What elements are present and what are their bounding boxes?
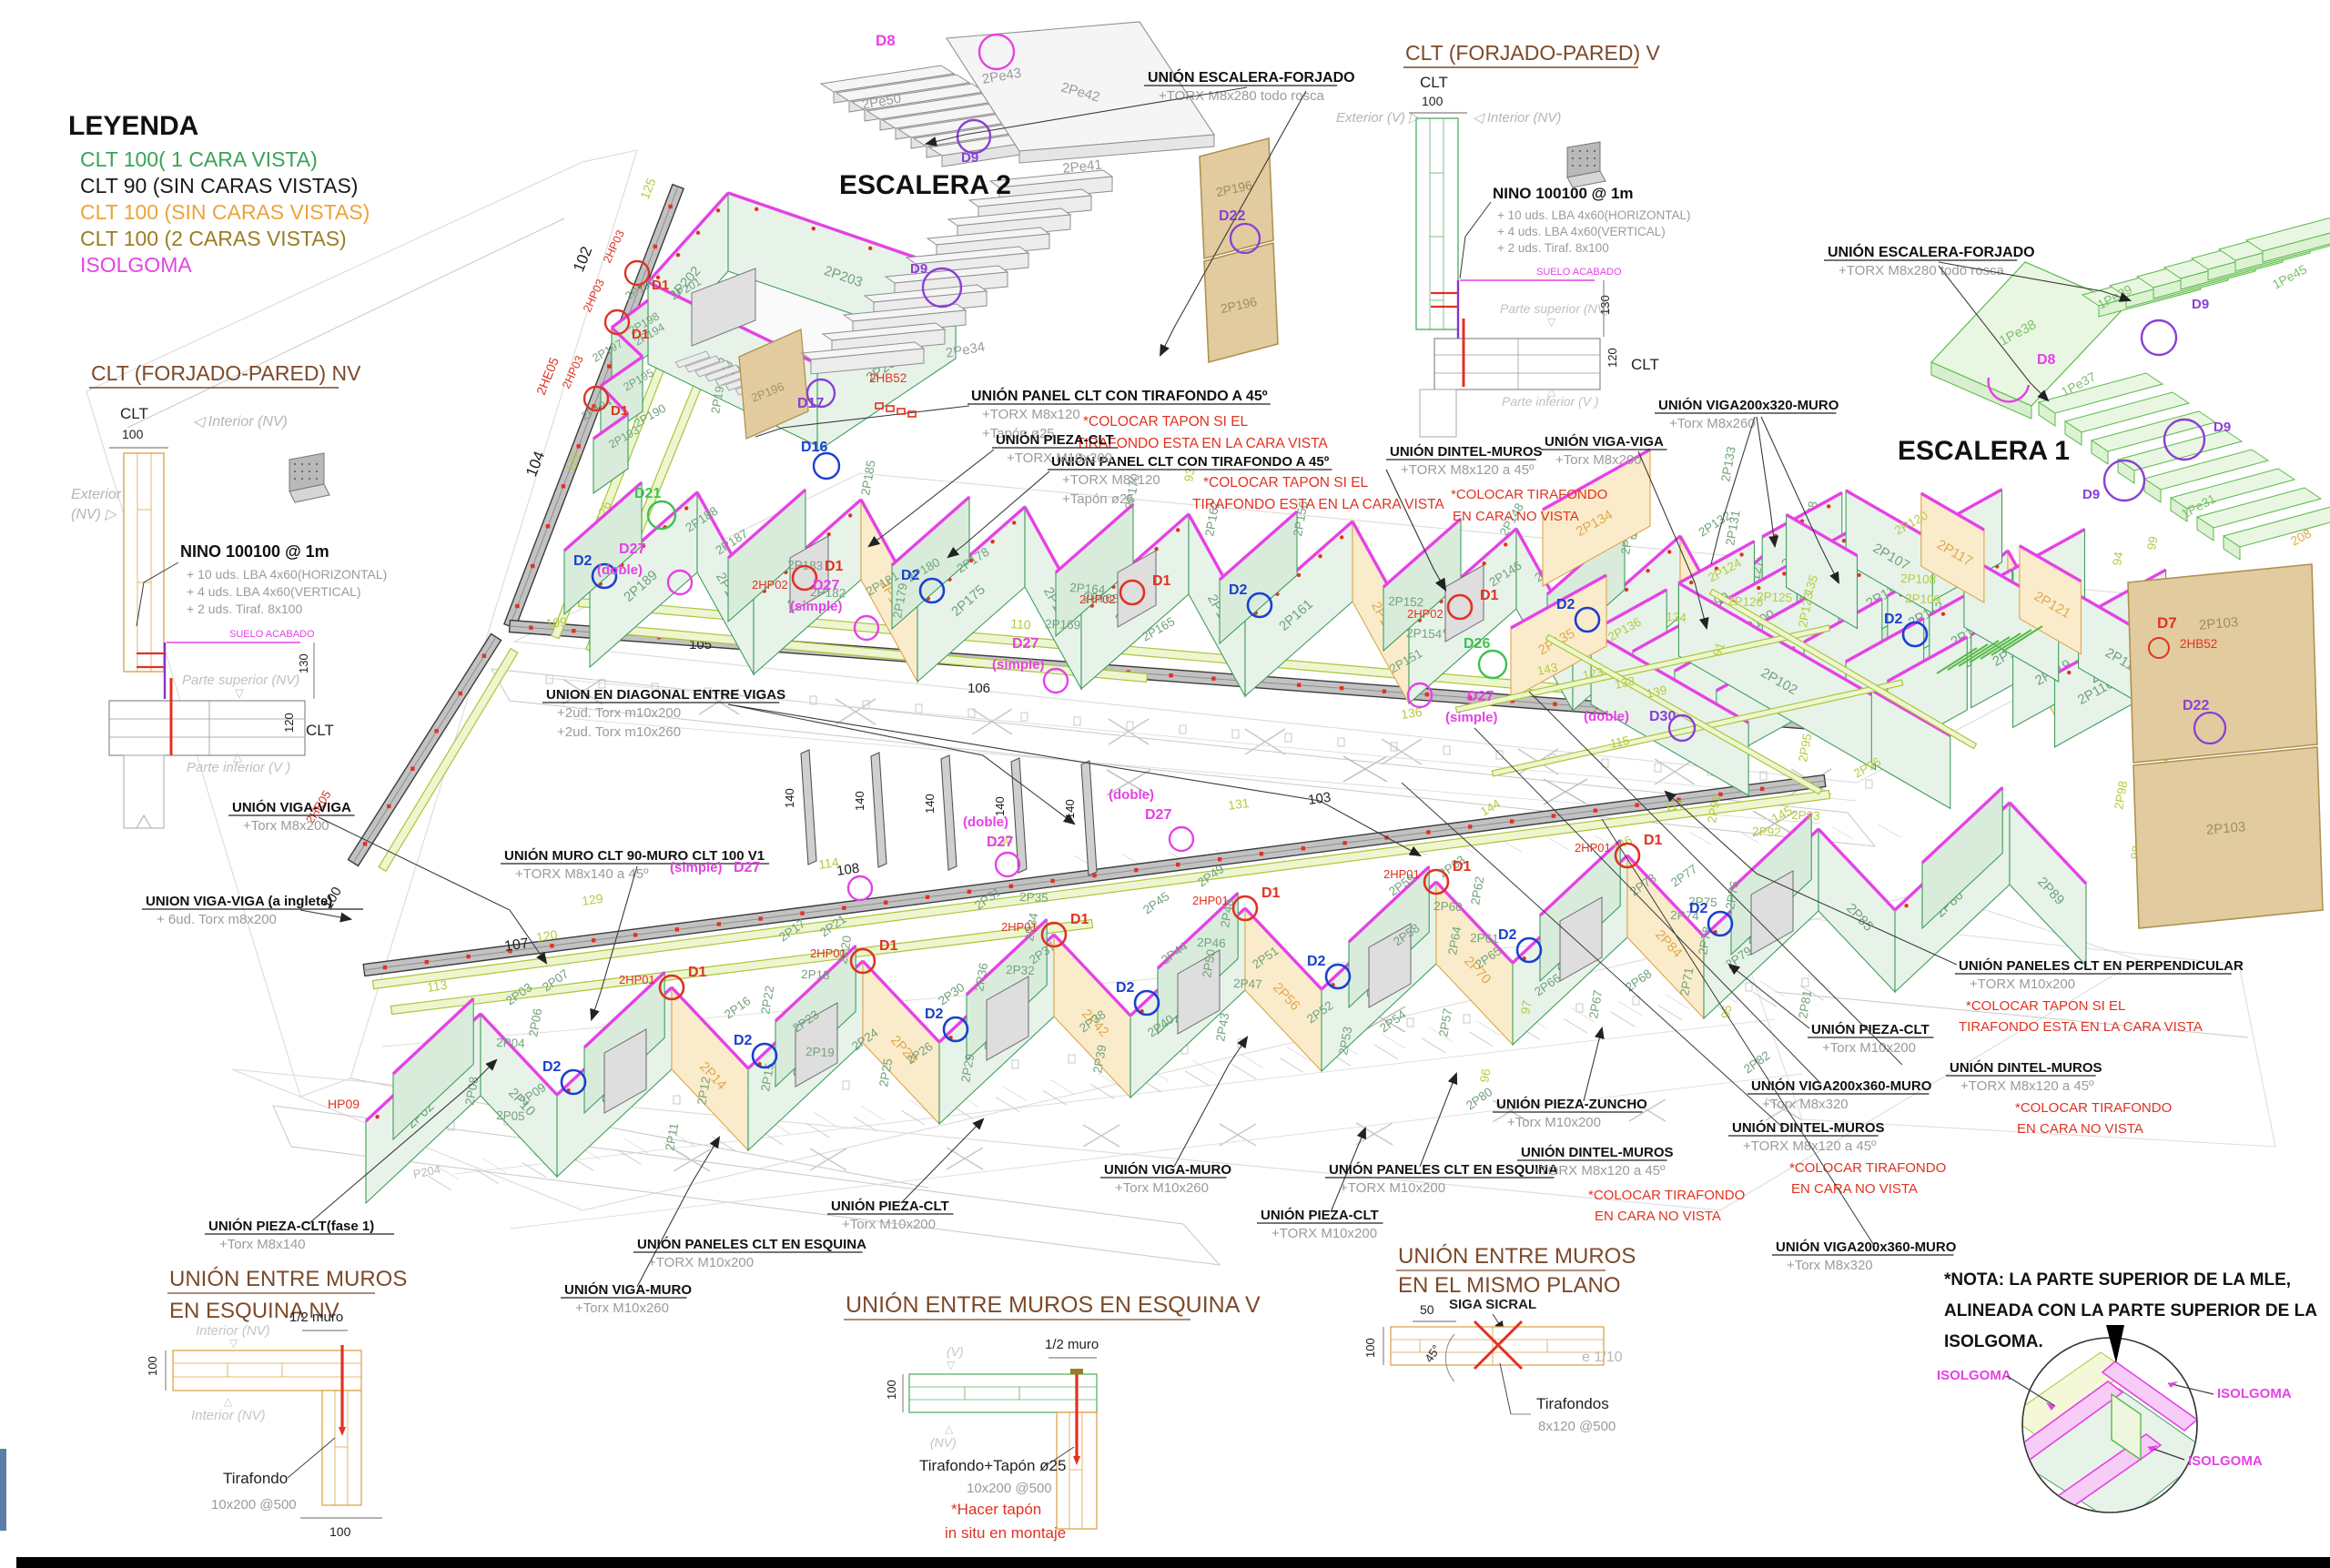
svg-text:140: 140	[783, 788, 796, 808]
svg-text:+2ud. Torx m10x260: +2ud. Torx m10x260	[557, 724, 681, 740]
svg-text:109: 109	[545, 614, 568, 631]
svg-text:D2: D2	[1689, 901, 1708, 916]
svg-text:D2: D2	[1307, 954, 1326, 969]
svg-text:(doble): (doble)	[963, 814, 1008, 830]
svg-text:100: 100	[146, 1356, 159, 1376]
svg-text:D8: D8	[2037, 352, 2056, 368]
svg-text:*COLOCAR TAPON SI EL: *COLOCAR TAPON SI EL	[1966, 998, 2125, 1014]
svg-text:UNIÓN DINTEL-MUROS: UNIÓN DINTEL-MUROS	[1521, 1144, 1674, 1160]
svg-text:2P108: 2P108	[1900, 572, 1937, 586]
svg-text:+TORX M8x120 a 45º: +TORX M8x120 a 45º	[1401, 462, 1535, 478]
svg-text:UNIÓN ENTRE MUROS EN ESQUINA V: UNIÓN ENTRE MUROS EN ESQUINA V	[846, 1291, 1261, 1318]
svg-text:+TORX M8x120: +TORX M8x120	[1062, 472, 1160, 488]
svg-text:*COLOCAR TIRAFONDO: *COLOCAR TIRAFONDO	[1789, 1160, 1946, 1176]
svg-text:UNIÓN DINTEL-MUROS: UNIÓN DINTEL-MUROS	[1390, 443, 1543, 460]
svg-text:(doble): (doble)	[597, 562, 643, 578]
svg-text:D1: D1	[1453, 859, 1472, 875]
svg-text:CLT 100( 1 CARA VISTA): CLT 100( 1 CARA VISTA)	[80, 147, 318, 171]
svg-text:D2: D2	[1116, 980, 1135, 996]
svg-text:UNIÓN ESCALERA-FORJADO: UNIÓN ESCALERA-FORJADO	[1828, 243, 2035, 260]
svg-text:D9: D9	[2213, 420, 2231, 435]
svg-text:+ 6ud. Torx m8x200: + 6ud. Torx m8x200	[157, 912, 277, 927]
svg-text:in situ en montaje: in situ en montaje	[945, 1524, 1066, 1542]
svg-text:+Torx M8x200: +Torx M8x200	[1555, 452, 1642, 468]
svg-text:2P92: 2P92	[1752, 824, 1781, 839]
svg-text:*Hacer tapón: *Hacer tapón	[951, 1501, 1041, 1518]
svg-text:2HB52: 2HB52	[869, 371, 907, 385]
svg-text:D9: D9	[2192, 297, 2209, 312]
svg-text:▽: ▽	[1547, 316, 1556, 329]
svg-text:+TORX M8x120 a 45º: +TORX M8x120 a 45º	[1532, 1163, 1666, 1179]
svg-text:EN CARA NO VISTA: EN CARA NO VISTA	[1453, 509, 1579, 524]
svg-text:CLT: CLT	[306, 722, 334, 739]
svg-text:*COLOCAR TAPON SI EL: *COLOCAR TAPON SI EL	[1083, 414, 1249, 430]
svg-text:D27: D27	[1467, 689, 1494, 704]
svg-text:1/2 muro: 1/2 muro	[289, 1310, 343, 1325]
svg-text:D2: D2	[573, 553, 593, 569]
svg-text:▽: ▽	[947, 1359, 956, 1371]
svg-text:2HP01: 2HP01	[1383, 867, 1420, 881]
svg-text:2HP02: 2HP02	[752, 578, 788, 592]
svg-text:(simple): (simple)	[790, 599, 843, 614]
svg-text:131: 131	[1227, 795, 1251, 813]
svg-text:50: 50	[1420, 1302, 1434, 1317]
svg-text:ISOLGOMA: ISOLGOMA	[2217, 1386, 2292, 1401]
svg-text:10x200 @500: 10x200 @500	[211, 1497, 297, 1512]
svg-text:e 1/10: e 1/10	[1582, 1350, 1623, 1365]
svg-text:EN CARA NO VISTA: EN CARA NO VISTA	[1595, 1209, 1721, 1224]
svg-text:▽: ▽	[229, 1337, 238, 1350]
svg-text:+ 4 uds. LBA 4x60(VERTICAL): + 4 uds. LBA 4x60(VERTICAL)	[1497, 225, 1666, 238]
svg-text:UNIÓN PANELES CLT EN ESQUINA: UNIÓN PANELES CLT EN ESQUINA	[1329, 1161, 1558, 1178]
svg-text:UNIÓN DINTEL-MUROS: UNIÓN DINTEL-MUROS	[1732, 1119, 1885, 1136]
svg-text:HP09: HP09	[328, 1097, 360, 1111]
svg-text:CLT: CLT	[1631, 356, 1659, 373]
svg-text:+TORX M10x200: +TORX M10x200	[1007, 450, 1112, 466]
svg-text:UNIÓN VIGA200x360-MURO: UNIÓN VIGA200x360-MURO	[1776, 1239, 1957, 1255]
svg-text:ISOLGOMA: ISOLGOMA	[1937, 1368, 2011, 1383]
svg-text:△: △	[233, 750, 242, 764]
svg-text:+TORX M8x280 todo rosca: +TORX M8x280 todo rosca	[1839, 263, 2005, 278]
svg-text:2P05: 2P05	[496, 1108, 525, 1123]
svg-text:96: 96	[1477, 1067, 1493, 1083]
svg-text:ESCALERA 2: ESCALERA 2	[839, 170, 1011, 200]
svg-text:+Torx M8x200: +Torx M8x200	[243, 818, 329, 834]
svg-text:2P19: 2P19	[805, 1045, 835, 1059]
svg-text:D21: D21	[634, 486, 661, 501]
svg-text:D2: D2	[1884, 612, 1903, 627]
svg-text:UNIÓN MURO CLT 90-MURO CLT 100: UNIÓN MURO CLT 90-MURO CLT 100 V1	[504, 847, 765, 864]
svg-text:UNIÓN DINTEL-MUROS: UNIÓN DINTEL-MUROS	[1950, 1059, 2102, 1076]
svg-text:D27: D27	[619, 541, 645, 557]
svg-text:*COLOCAR TAPON SI EL: *COLOCAR TAPON SI EL	[1203, 475, 1369, 491]
svg-text:D27: D27	[813, 578, 839, 593]
svg-text:◁ Interior (NV): ◁ Interior (NV)	[193, 414, 288, 430]
svg-text:UNIÓN PIEZA-CLT: UNIÓN PIEZA-CLT	[996, 431, 1114, 448]
svg-text:UNION VIGA-VIGA (a inglete): UNION VIGA-VIGA (a inglete)	[146, 894, 332, 909]
svg-text:ALINEADA CON LA PARTE SUPERIOR: ALINEADA CON LA PARTE SUPERIOR DE LA	[1944, 1301, 2317, 1320]
svg-text:Tirafondo+Tapón ø25: Tirafondo+Tapón ø25	[919, 1457, 1066, 1474]
svg-text:8x120 @500: 8x120 @500	[1538, 1419, 1616, 1434]
svg-text:+TORX M10x200: +TORX M10x200	[1271, 1226, 1377, 1241]
svg-text:(NV) ▷: (NV) ▷	[71, 507, 117, 522]
svg-text:2HP01: 2HP01	[810, 946, 846, 960]
svg-text:ISOLGOMA.: ISOLGOMA.	[1944, 1332, 2043, 1351]
svg-text:+ 2 uds. Tiraf. 8x100: + 2 uds. Tiraf. 8x100	[1497, 241, 1609, 255]
svg-text:+TORX M8x140 a 45º: +TORX M8x140 a 45º	[515, 866, 649, 882]
svg-text:D2: D2	[734, 1033, 753, 1048]
svg-text:D2: D2	[542, 1059, 562, 1075]
svg-text:140: 140	[853, 791, 866, 811]
svg-text:D1: D1	[611, 403, 628, 419]
svg-text:129: 129	[581, 891, 604, 908]
svg-text:*COLOCAR TIRAFONDO: *COLOCAR TIRAFONDO	[1451, 487, 1607, 502]
svg-text:△: △	[1547, 385, 1556, 398]
svg-text:D9: D9	[910, 261, 927, 277]
svg-text:D7: D7	[2157, 614, 2177, 632]
svg-text:140: 140	[923, 794, 937, 814]
svg-text:Parte superior (NV): Parte superior (NV)	[1500, 301, 1610, 316]
svg-text:UNIÓN VIGA-MURO: UNIÓN VIGA-MURO	[564, 1281, 692, 1298]
svg-text:D1: D1	[825, 559, 844, 574]
svg-text:CLT 100 (SIN CARAS VISTAS): CLT 100 (SIN CARAS VISTAS)	[80, 200, 370, 224]
svg-text:D27: D27	[1012, 636, 1038, 652]
svg-text:UNIÓN ENTRE MUROS: UNIÓN ENTRE MUROS	[1398, 1244, 1636, 1269]
svg-text:100: 100	[885, 1380, 898, 1400]
svg-text:Tirafondo: Tirafondo	[223, 1470, 288, 1487]
svg-text:2P35: 2P35	[1019, 890, 1048, 905]
svg-text:CLT: CLT	[1420, 74, 1448, 91]
svg-text:UNIÓN PANELES CLT EN PERPENDIC: UNIÓN PANELES CLT EN PERPENDICULAR	[1959, 957, 2244, 974]
svg-text:UNIÓN VIGA-VIGA: UNIÓN VIGA-VIGA	[232, 799, 351, 815]
svg-text:2HP02: 2HP02	[1407, 607, 1444, 621]
svg-text:2P93: 2P93	[1791, 808, 1820, 823]
svg-text:+TORX M8x120: +TORX M8x120	[982, 407, 1080, 422]
svg-text:D2: D2	[925, 1007, 944, 1022]
svg-text:2HB52: 2HB52	[2180, 637, 2217, 651]
svg-text:100: 100	[329, 1524, 351, 1539]
svg-text:UNIÓN PIEZA-CLT: UNIÓN PIEZA-CLT	[1261, 1207, 1379, 1223]
svg-text:D27: D27	[734, 860, 760, 875]
svg-text:▽: ▽	[235, 686, 244, 700]
svg-text:+TORX M8x120 a 45º: +TORX M8x120 a 45º	[1960, 1078, 2094, 1094]
svg-text:D22: D22	[2183, 698, 2209, 713]
svg-text:UNIÓN VIGA200x320-MURO: UNIÓN VIGA200x320-MURO	[1658, 397, 1839, 413]
svg-text:NINO 100100 @ 1m: NINO 100100 @ 1m	[180, 542, 329, 561]
svg-text:2P32: 2P32	[1006, 963, 1035, 977]
svg-text:2HP01: 2HP01	[619, 973, 655, 986]
svg-text:D27: D27	[987, 835, 1013, 850]
svg-text:2P169: 2P169	[1045, 617, 1081, 632]
svg-text:D1: D1	[1261, 885, 1281, 901]
svg-text:D1: D1	[1480, 588, 1499, 603]
svg-text:2P18: 2P18	[801, 967, 830, 982]
svg-text:+TORX M8x120 a 45º: +TORX M8x120 a 45º	[1743, 1138, 1877, 1154]
svg-text:+TORX M10x200: +TORX M10x200	[1340, 1180, 1445, 1196]
svg-text:Interior (NV): Interior (NV)	[191, 1408, 266, 1423]
svg-text:100: 100	[1422, 94, 1444, 108]
svg-text:+Torx M10x260: +Torx M10x260	[575, 1300, 669, 1316]
svg-text:D1: D1	[879, 938, 898, 954]
svg-text:1/2 muro: 1/2 muro	[1045, 1337, 1099, 1352]
svg-text:2P46: 2P46	[1197, 936, 1226, 950]
svg-text:ISOLGOMA: ISOLGOMA	[80, 253, 192, 277]
svg-text:△: △	[945, 1422, 954, 1435]
svg-text:+ 10 uds. LBA 4x60(HORIZONTAL): + 10 uds. LBA 4x60(HORIZONTAL)	[187, 567, 387, 582]
svg-text:CLT (FORJADO-PARED) NV: CLT (FORJADO-PARED) NV	[91, 361, 361, 385]
svg-text:Exterior (V) ▷: Exterior (V) ▷	[1336, 110, 1421, 126]
svg-text:D1: D1	[1070, 912, 1089, 927]
svg-text:D26: D26	[1464, 636, 1490, 652]
svg-text:UNIÓN ENTRE MUROS: UNIÓN ENTRE MUROS	[169, 1267, 407, 1291]
svg-text:2HP01: 2HP01	[1575, 841, 1611, 855]
svg-text:TIRAFONDO ESTA EN LA CARA VIST: TIRAFONDO ESTA EN LA CARA VISTA	[1959, 1019, 2203, 1035]
svg-text:+Torx M10x200: +Torx M10x200	[842, 1217, 936, 1232]
svg-text:+ 10 uds. LBA 4x60(HORIZONTAL): + 10 uds. LBA 4x60(HORIZONTAL)	[1497, 208, 1690, 222]
svg-text:UNIÓN VIGA-VIGA: UNIÓN VIGA-VIGA	[1545, 433, 1664, 450]
svg-text:130: 130	[297, 653, 310, 673]
svg-text:D8: D8	[876, 32, 896, 49]
svg-text:EN CARA NO VISTA: EN CARA NO VISTA	[1791, 1181, 1918, 1197]
svg-text:CLT: CLT	[120, 405, 148, 422]
svg-text:100: 100	[122, 427, 144, 441]
svg-text:CLT (FORJADO-PARED) V: CLT (FORJADO-PARED) V	[1405, 41, 1661, 65]
svg-text:ESCALERA 1: ESCALERA 1	[1898, 436, 2070, 466]
svg-text:LEYENDA: LEYENDA	[68, 111, 198, 141]
svg-text:2HP02: 2HP02	[1079, 592, 1116, 606]
svg-text:2P109: 2P109	[1905, 592, 1941, 606]
svg-text:(simple): (simple)	[670, 860, 723, 875]
svg-text:Tirafondos: Tirafondos	[1536, 1395, 1609, 1412]
svg-text:97: 97	[1518, 999, 1534, 1015]
svg-text:+ 2 uds. Tiraf. 8x100: + 2 uds. Tiraf. 8x100	[187, 602, 302, 616]
svg-text:UNIÓN PIEZA-CLT(fase 1): UNIÓN PIEZA-CLT(fase 1)	[208, 1218, 374, 1234]
svg-text:140: 140	[1063, 799, 1077, 819]
svg-text:140: 140	[993, 796, 1007, 816]
svg-text:+Torx M8x320: +Torx M8x320	[1762, 1097, 1849, 1112]
svg-text:D22: D22	[1219, 208, 1245, 224]
svg-text:UNIÓN ESCALERA-FORJADO: UNIÓN ESCALERA-FORJADO	[1148, 68, 1355, 86]
svg-text:114: 114	[817, 855, 840, 872]
svg-text:Exterior: Exterior	[71, 487, 122, 502]
svg-text:+Torx M10x200: +Torx M10x200	[1507, 1115, 1601, 1130]
svg-text:*COLOCAR TIRAFONDO: *COLOCAR TIRAFONDO	[1588, 1188, 1745, 1203]
svg-text:120: 120	[282, 713, 296, 733]
svg-text:94: 94	[2110, 551, 2125, 567]
svg-text:D2: D2	[1556, 597, 1575, 612]
svg-text:*COLOCAR TIRAFONDO: *COLOCAR TIRAFONDO	[2015, 1100, 2172, 1116]
svg-text:(V): (V)	[947, 1344, 964, 1359]
svg-text:120: 120	[1606, 348, 1619, 368]
svg-text:D27: D27	[1145, 807, 1171, 823]
svg-text:+TORX M10x200: +TORX M10x200	[1970, 976, 2075, 992]
svg-text:(doble): (doble)	[1109, 787, 1154, 803]
svg-text:EN CARA NO VISTA: EN CARA NO VISTA	[2017, 1121, 2143, 1137]
svg-text:+TORX M10x200: +TORX M10x200	[648, 1255, 754, 1270]
svg-text:2P04: 2P04	[496, 1036, 526, 1050]
svg-text:+Tapón ø25: +Tapón ø25	[1062, 491, 1135, 507]
svg-text:+ 4 uds. LBA 4x60(VERTICAL): + 4 uds. LBA 4x60(VERTICAL)	[187, 584, 361, 599]
svg-text:106: 106	[967, 681, 990, 696]
svg-text:EN EL MISMO PLANO: EN EL MISMO PLANO	[1398, 1273, 1621, 1298]
svg-text:SIGA SICRAL: SIGA SICRAL	[1449, 1297, 1536, 1312]
svg-text:D1: D1	[1644, 833, 1663, 848]
svg-text:UNION EN DIAGONAL ENTRE VIGAS: UNION EN DIAGONAL ENTRE VIGAS	[546, 687, 785, 703]
svg-text:UNIÓN PANEL CLT CON TIRAFONDO: UNIÓN PANEL CLT CON TIRAFONDO A 45º	[971, 387, 1268, 404]
svg-text:110: 110	[1010, 616, 1032, 632]
svg-text:130: 130	[1598, 295, 1612, 315]
svg-text:D30: D30	[1649, 709, 1676, 724]
svg-text:2P61: 2P61	[1470, 931, 1499, 946]
svg-text:2P154: 2P154	[1406, 626, 1443, 641]
svg-text:D2: D2	[901, 568, 920, 583]
svg-text:2P60: 2P60	[1433, 899, 1463, 914]
svg-text:*NOTA: LA PARTE SUPERIOR DE LA: *NOTA: LA PARTE SUPERIOR DE LA MLE,	[1944, 1270, 2291, 1290]
svg-text:UNIÓN PIEZA-CLT: UNIÓN PIEZA-CLT	[1811, 1021, 1930, 1037]
svg-text:+Torx M10x200: +Torx M10x200	[1822, 1040, 1916, 1056]
svg-text:+Torx M8x320: +Torx M8x320	[1787, 1258, 1873, 1273]
svg-text:(NV): (NV)	[930, 1435, 957, 1450]
svg-text:CLT 100 (2 CARAS VISTAS): CLT 100 (2 CARAS VISTAS)	[80, 227, 347, 250]
svg-text:D1: D1	[632, 327, 649, 342]
svg-text:2HP01: 2HP01	[1001, 920, 1038, 934]
svg-text:CLT 90 (SIN CARAS VISTAS): CLT 90 (SIN CARAS VISTAS)	[80, 174, 358, 197]
svg-text:D1: D1	[688, 965, 707, 980]
svg-text:+Torx M8x260: +Torx M8x260	[1669, 416, 1756, 431]
svg-text:◁ Interior (NV): ◁ Interior (NV)	[1473, 110, 1561, 126]
svg-text:UNIÓN VIGA200x360-MURO: UNIÓN VIGA200x360-MURO	[1751, 1077, 1932, 1094]
svg-text:(simple): (simple)	[992, 657, 1045, 673]
svg-text:+Torx M10x260: +Torx M10x260	[1115, 1180, 1209, 1196]
svg-text:ISOLGOMA: ISOLGOMA	[2188, 1453, 2263, 1469]
svg-text:(doble): (doble)	[1584, 709, 1629, 724]
svg-text:SUELO ACABADO: SUELO ACABADO	[229, 629, 315, 640]
svg-text:134: 134	[1666, 610, 1687, 625]
svg-text:+Torx M8x140: +Torx M8x140	[219, 1237, 306, 1252]
svg-text:10x200 @500: 10x200 @500	[967, 1481, 1052, 1496]
svg-text:D2: D2	[1229, 582, 1248, 598]
svg-text:2P47: 2P47	[1233, 976, 1262, 991]
svg-text:UNIÓN PANELES CLT EN ESQUINA: UNIÓN PANELES CLT EN ESQUINA	[637, 1236, 866, 1252]
svg-text:D2: D2	[1498, 927, 1517, 943]
svg-text:D1: D1	[652, 278, 669, 293]
svg-text:TIRAFONDO ESTA EN LA CARA VIST: TIRAFONDO ESTA EN LA CARA VISTA	[1192, 497, 1444, 512]
svg-text:99: 99	[2144, 535, 2160, 551]
svg-text:2HP01: 2HP01	[1192, 894, 1229, 907]
svg-text:100: 100	[1363, 1338, 1377, 1358]
svg-text:D9: D9	[2082, 487, 2100, 502]
svg-text:(simple): (simple)	[1445, 710, 1498, 725]
svg-text:D1: D1	[1152, 573, 1171, 589]
svg-text:UNIÓN VIGA-MURO: UNIÓN VIGA-MURO	[1104, 1161, 1231, 1178]
svg-text:+2ud. Torx m10x200: +2ud. Torx m10x200	[557, 705, 681, 721]
svg-text:NINO 100100 @ 1m: NINO 100100 @ 1m	[1493, 185, 1634, 202]
svg-text:△: △	[224, 1395, 233, 1408]
svg-text:UNIÓN PIEZA-CLT: UNIÓN PIEZA-CLT	[831, 1198, 949, 1214]
svg-text:2P126: 2P126	[1727, 594, 1764, 609]
svg-text:SUELO ACABADO: SUELO ACABADO	[1536, 267, 1622, 278]
svg-text:UNIÓN PIEZA-ZUNCHO: UNIÓN PIEZA-ZUNCHO	[1496, 1096, 1647, 1112]
